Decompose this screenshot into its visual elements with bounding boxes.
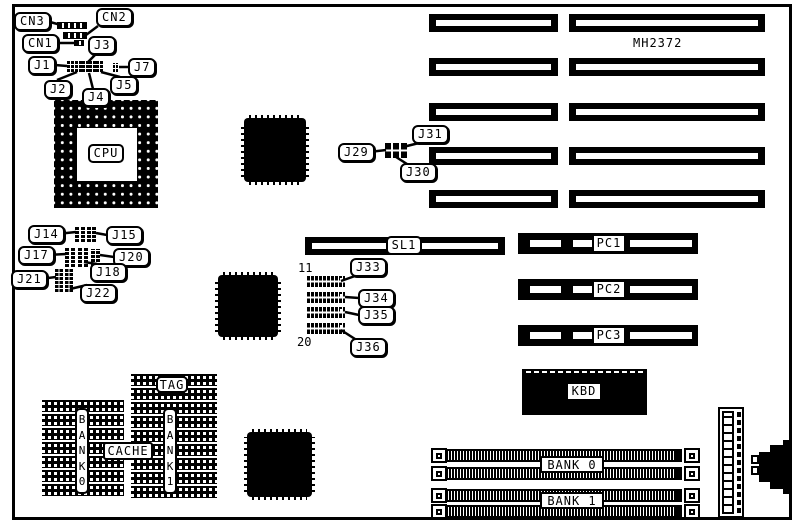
chip-pins (241, 123, 244, 177)
isa-slot-stripe (576, 109, 758, 115)
isa-slot-stripe (436, 153, 551, 159)
isa-slot-5-right (569, 190, 765, 208)
chip-pins (244, 437, 247, 492)
cpu-socket: CPU (54, 100, 158, 208)
chipset-qfp-3 (247, 432, 312, 497)
pin-number-11: 11 (298, 261, 312, 275)
callout-j31: J31 (412, 125, 449, 144)
isa-slot-4-right (569, 147, 765, 165)
simm-latch (684, 448, 700, 463)
keyboard-din-connector (770, 445, 783, 489)
simm-latch (684, 504, 700, 519)
jumper-j14 (75, 226, 85, 242)
slot-stripe (573, 286, 593, 293)
isa-slot-stripe (576, 64, 758, 70)
chip-pins (249, 182, 301, 185)
isa-slot-stripe (576, 196, 758, 202)
chip-pins (306, 123, 309, 177)
isa-slot-4-left (429, 147, 558, 165)
cache-bank0-label: BANK0 (75, 408, 89, 494)
isa-slot-stripe (436, 109, 551, 115)
chip-pins (223, 272, 273, 275)
power-connector-keys (737, 412, 741, 513)
latch-hook (689, 471, 695, 477)
isa-slot-1-left (429, 14, 558, 32)
callout-j35: J35 (358, 306, 395, 325)
callout-j1: J1 (28, 56, 56, 75)
callout-j18: J18 (90, 263, 127, 282)
chip-pins (252, 497, 307, 500)
chip-pins (252, 429, 307, 432)
slot-stripe (630, 240, 692, 247)
latch-hook (436, 509, 442, 515)
jumper-j3 (82, 61, 89, 72)
simm-latch (431, 488, 447, 503)
jumper-j36 (307, 323, 345, 334)
isa-slot-2-right (569, 58, 765, 76)
chip-pins (223, 337, 273, 340)
jumper-j2 (75, 61, 82, 72)
slot-stripe (530, 286, 561, 293)
latch-hook (689, 493, 695, 499)
cache-bank1-label: BANK1 (163, 408, 177, 494)
simm-latch (684, 466, 700, 481)
latch-hook (689, 509, 695, 515)
callout-j4: J4 (82, 88, 110, 107)
slot-stripe (630, 332, 692, 339)
chip-pins (249, 115, 301, 118)
keyboard-din-connector (783, 440, 792, 494)
slot-stripe (530, 240, 561, 247)
slot-pc3-label: PC3 (592, 326, 626, 345)
jumper-j17 (65, 247, 75, 267)
connector-cn2 (63, 32, 87, 39)
callout-j14: J14 (28, 225, 65, 244)
callout-j17: J17 (18, 246, 55, 265)
callout-j21: J21 (11, 270, 48, 289)
chipset-qfp-2 (218, 275, 278, 337)
jumper-j4 (89, 61, 96, 72)
callout-j33: J33 (350, 258, 387, 277)
isa-slot-1-right (569, 14, 765, 32)
isa-slot-stripe (576, 153, 758, 159)
chip-pins (526, 371, 643, 373)
isa-slot-3-left (429, 103, 558, 121)
slot-stripe (530, 332, 561, 339)
simm-latch (431, 448, 447, 463)
latch-hook (436, 493, 442, 499)
slot-pc2-label: PC2 (592, 280, 626, 299)
jumper-j7 (113, 63, 118, 72)
simm-latch (431, 504, 447, 519)
slot-sl1-label: SL1 (386, 236, 422, 255)
cpu-label: CPU (88, 144, 124, 163)
latch-hook (436, 453, 442, 459)
callout-j7: J7 (128, 58, 156, 77)
callout-j2: J2 (44, 80, 72, 99)
callout-j22: J22 (80, 284, 117, 303)
callout-j36: J36 (350, 338, 387, 357)
callout-cn1: CN1 (22, 34, 59, 53)
simm-bank0-label: BANK 0 (540, 456, 604, 473)
chipset-qfp-1 (244, 118, 306, 182)
jumper-j34 (307, 292, 345, 303)
simm-latch (684, 488, 700, 503)
din-pin (751, 455, 759, 464)
motherboard-diagram: CN3 CN2 CN1 J3 J1 J7 J2 J5 J4 CPU J29 J3… (0, 0, 797, 528)
slot-stripe (573, 332, 593, 339)
din-pin (751, 466, 759, 475)
isa-slot-2-left (429, 58, 558, 76)
cache-label: CACHE (103, 442, 153, 460)
callout-j15: J15 (106, 226, 143, 245)
isa-slot-stripe (436, 20, 551, 26)
callout-j29: J29 (338, 143, 375, 162)
jumper-j15 (87, 226, 96, 242)
slot-pc1-label: PC1 (592, 234, 626, 253)
jumper-j22 (65, 268, 73, 292)
chip-pins (278, 280, 281, 332)
isa-slot-stripe (436, 64, 551, 70)
power-connector-pins (722, 411, 734, 514)
pin-number-20: 20 (297, 335, 311, 349)
jumper-j33 (307, 276, 345, 287)
latch-hook (436, 471, 442, 477)
callout-cn2: CN2 (96, 8, 133, 27)
kbd-label: KBD (566, 382, 602, 401)
isa-slot-stripe (576, 20, 758, 26)
simm-bank1-label: BANK 1 (540, 492, 604, 509)
slot-stripe (573, 240, 593, 247)
callout-j5: J5 (110, 76, 138, 95)
callout-cn3: CN3 (14, 12, 51, 31)
simm-latch (431, 466, 447, 481)
callout-j30: J30 (400, 163, 437, 182)
jumper-j21 (55, 268, 63, 292)
connector-cn3 (57, 22, 87, 29)
connector-cn1 (74, 40, 84, 46)
chip-pins (312, 437, 315, 492)
jumper-j5 (96, 61, 103, 72)
slot-stripe (630, 286, 692, 293)
isa-slot-3-right (569, 103, 765, 121)
keyboard-bios-chip: KBD (522, 369, 647, 415)
power-connector (718, 407, 744, 518)
isa-slot-5-left (429, 190, 558, 208)
keyboard-din-connector (759, 452, 770, 482)
tag-ram-label: TAG (156, 376, 188, 393)
chip-pins (215, 280, 218, 332)
jumper-j18 (78, 247, 88, 267)
jumper-j35 (307, 307, 345, 318)
board-model-text: MH2372 (633, 36, 682, 50)
jumper-j1 (67, 61, 74, 72)
callout-j3: J3 (88, 36, 116, 55)
latch-hook (689, 453, 695, 459)
jumper-j29-j30-j31-block (385, 143, 408, 158)
isa-slot-stripe (436, 196, 551, 202)
